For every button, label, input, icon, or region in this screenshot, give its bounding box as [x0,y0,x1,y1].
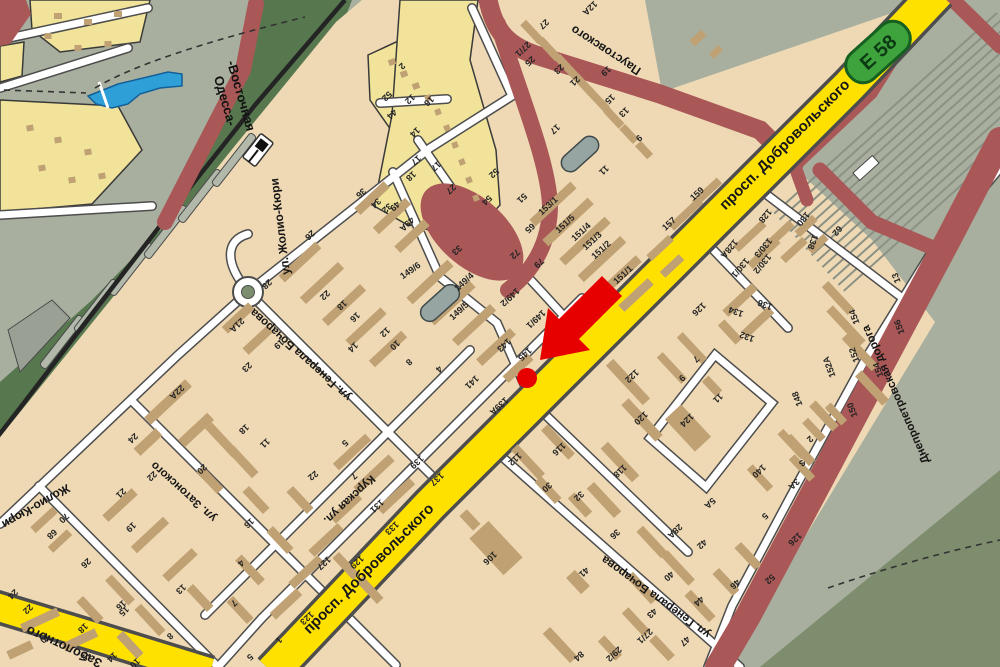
building [54,13,62,19]
building [54,136,62,143]
map-viewport[interactable]: просп. Добровольскогопросп. Добровольско… [0,0,1000,667]
building [45,33,52,39]
building [75,45,82,51]
building [84,148,92,155]
roundabout-island [242,286,255,299]
map-canvas[interactable]: просп. Добровольскогопросп. Добровольско… [0,0,1000,667]
building [84,19,92,25]
building [38,164,46,171]
building [98,172,106,179]
building [105,41,112,47]
building [114,11,122,17]
destination-dot [517,368,537,388]
building [26,124,34,131]
building [68,176,76,183]
